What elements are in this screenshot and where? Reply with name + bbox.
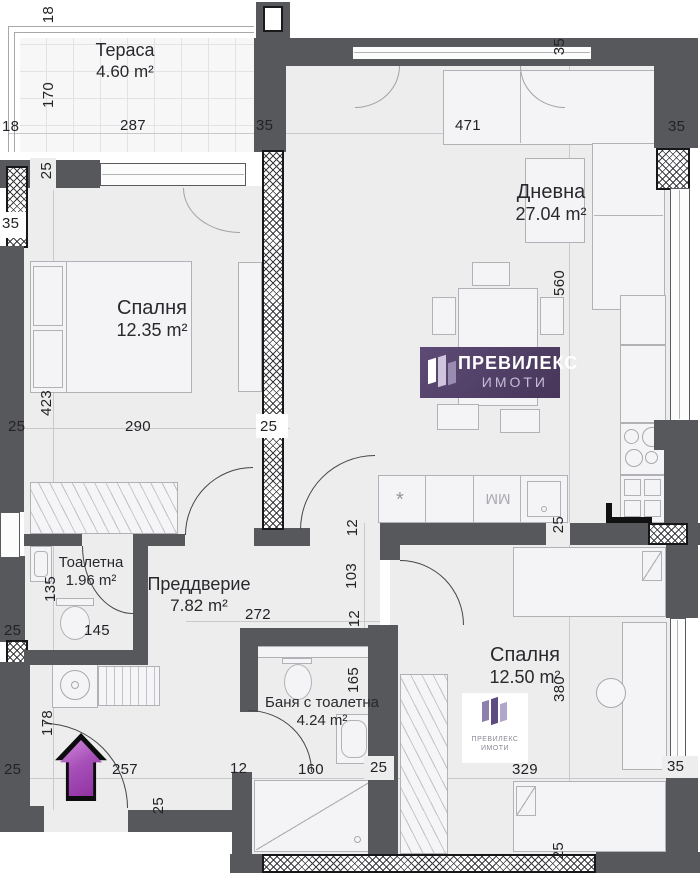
wall-terrace-right <box>254 38 286 152</box>
dim-471: 471 <box>455 117 481 134</box>
dim-35-left-column: 35 <box>2 215 19 232</box>
dim-25-toilet: 25 <box>4 622 21 639</box>
kitchen-counter-divider-2 <box>473 476 474 522</box>
bedroom2-stool <box>596 678 626 708</box>
hall-area: 7.82 m² <box>119 596 279 617</box>
logo-text-line1: ПРЕВИЛЕКС <box>458 353 578 374</box>
sofa-cushion-line-1 <box>520 72 521 143</box>
dim-165: 165 <box>345 667 362 693</box>
kitchen-sink-faucet <box>541 506 547 512</box>
window-living-right-line <box>679 190 680 419</box>
dim-25-bath-right: 25 <box>370 759 387 776</box>
dim-257: 257 <box>112 761 138 778</box>
logo-text-line2: ИМОТИ <box>482 374 548 390</box>
window-bedroom2-right <box>670 618 686 768</box>
wall-right-mid <box>654 420 698 450</box>
watermark-text-line2: ИМОТИ <box>462 744 528 753</box>
wall-bottom-bath-corner <box>230 854 262 873</box>
dim-35-top-right: 35 <box>551 38 568 55</box>
bedroom2-area: 12.50 m² <box>450 667 600 689</box>
wall-right-kitchen <box>664 450 698 525</box>
dining-chair-bottom-left <box>437 404 479 430</box>
wall-toilet-top-a <box>24 534 82 546</box>
label-bath: Баня с тоалетна 4.24 m² <box>258 694 386 731</box>
stove-burner-4 <box>645 451 658 464</box>
bedroom2-name: Спалня <box>450 643 600 667</box>
dim-25-left-top: 25 <box>38 162 55 179</box>
logo-building-icon-2 <box>438 355 446 388</box>
bedroom2-bed2-pillow <box>516 786 536 816</box>
entrance-threshold <box>44 806 128 832</box>
bedroom1-pillow-2 <box>33 330 63 388</box>
dining-chair-bottom-right <box>500 409 540 433</box>
window-bedroom1-line <box>102 174 244 175</box>
dim-25-kitchen: 25 <box>550 516 567 533</box>
column-right-top <box>656 148 690 190</box>
label-hall: Преддверие 7.82 m² <box>119 574 279 617</box>
dim-560: 560 <box>551 270 568 296</box>
bath-name: Баня с тоалетна <box>258 694 386 712</box>
dim-35-terrace: 35 <box>256 117 273 134</box>
dining-chair-right <box>540 297 564 335</box>
logo-building-icon-3 <box>448 361 456 386</box>
washing-machine-mark: ММ <box>478 490 518 507</box>
dim-287: 287 <box>120 117 146 134</box>
toilet-area: 1.96 m² <box>48 572 134 590</box>
dim-35-right-corner: 35 <box>668 118 685 135</box>
stove-burner-1 <box>624 429 639 444</box>
wall-left-bedroom1 <box>0 246 24 512</box>
wall-bottom-left-a <box>0 806 44 832</box>
column-center <box>262 150 284 530</box>
window-bedroom2-line <box>677 620 678 766</box>
kitchen-cabinet-door-4 <box>644 500 661 517</box>
dim-103: 103 <box>343 563 360 589</box>
bedroom2-wardrobe <box>400 674 448 854</box>
bath-area: 4.24 m² <box>258 712 386 730</box>
bedroom1-bed-line <box>66 262 67 392</box>
wall-bath-left <box>240 628 258 712</box>
label-bedroom2: Спалня 12.50 m² <box>450 643 600 689</box>
label-toilet: Тоалетна 1.96 m² <box>48 554 134 591</box>
dim-178: 178 <box>39 710 56 736</box>
watermark-text-line1: ПРЕВИЛЕКС <box>462 735 528 744</box>
label-terrace: Тераса 4.60 m² <box>58 40 192 83</box>
dim-145: 145 <box>84 622 110 639</box>
shower-drain <box>354 836 361 843</box>
wall-chimney-notch <box>263 6 283 32</box>
wall-hall-cap <box>254 528 310 546</box>
dim-290: 290 <box>125 418 151 435</box>
dim-423: 423 <box>38 390 55 416</box>
dim-170: 170 <box>40 82 57 108</box>
window-living-right <box>670 188 690 421</box>
label-bedroom1: Спалня 12.35 m² <box>80 296 224 342</box>
wall-bath-left-lower <box>232 772 252 856</box>
bedroom1-pillow-1 <box>33 266 63 326</box>
wall-toilet-top-b <box>133 534 185 546</box>
dim-329: 329 <box>512 761 538 778</box>
bedroom2-bed1-pillow <box>642 551 662 581</box>
fridge <box>620 295 666 345</box>
hall-shelf <box>98 666 160 706</box>
kitchen-cabinet-door-3 <box>624 500 641 517</box>
watermark-icon-bar-2 <box>491 697 498 725</box>
kitchen-counter-divider-3 <box>520 476 521 522</box>
brand-logo: ПРЕВИЛЕКС ИМОТИ <box>420 347 560 398</box>
wall-bedroom2-right-top <box>666 545 698 618</box>
window-left-small <box>0 512 20 558</box>
bedroom1-dresser <box>238 262 262 392</box>
sofa-right <box>592 143 665 310</box>
column-kitchen <box>648 523 688 545</box>
wall-bath-right <box>368 625 398 856</box>
terrace-name: Тераса <box>58 40 192 62</box>
dim-12-bath: 12 <box>230 760 247 777</box>
hall-name: Преддверие <box>119 574 279 596</box>
watermark-icon-bar-1 <box>482 700 489 722</box>
dim-25-bedroom1-right: 25 <box>260 418 277 435</box>
stove-burner-3 <box>625 449 643 467</box>
kitchen-cabinet-door-1 <box>624 479 641 496</box>
bedroom1-closet <box>30 482 178 534</box>
watermark-icon-bar-3 <box>500 702 507 722</box>
living-area: 27.04 m² <box>478 204 624 226</box>
terrace-area: 4.60 m² <box>58 62 192 83</box>
dining-chair-top <box>472 262 510 286</box>
floor-plan: * ММ <box>0 0 700 873</box>
dim-18-left: 18 <box>2 118 19 135</box>
kitchen-counter-right <box>620 345 666 423</box>
dim-12-b: 12 <box>346 610 363 627</box>
dim-12-a: 12 <box>344 519 361 536</box>
shower-tray-diagonal <box>256 782 370 850</box>
dim-35-bedroom2: 35 <box>667 758 684 775</box>
toilet-sink-bowl <box>34 551 48 577</box>
logo-building-icon <box>428 358 436 385</box>
washing-machine-hub <box>71 681 79 689</box>
wall-toilet-bottom <box>24 650 148 665</box>
label-living: Дневна 27.04 m² <box>478 180 624 226</box>
dim-18-top: 18 <box>40 6 57 23</box>
living-name: Дневна <box>478 180 624 204</box>
wall-bedroom2-right-bottom <box>666 768 698 856</box>
bedroom2-desk <box>622 622 667 770</box>
dim-160: 160 <box>298 761 324 778</box>
dim-25-hall-bottom: 25 <box>150 797 167 814</box>
toilet-wc-tank <box>56 598 94 606</box>
wall-bedroom2-left-top <box>380 545 400 560</box>
dim-25-bedroom1-left: 25 <box>8 418 25 435</box>
bedroom1-name: Спалня <box>80 296 224 320</box>
dim-25-entrance: 25 <box>4 761 21 778</box>
bedroom1-area: 12.35 m² <box>80 320 224 342</box>
toilet-name: Тоалетна <box>48 554 134 572</box>
wall-bottom-hatch <box>262 854 596 873</box>
dim-25-bottom-right: 25 <box>550 842 567 859</box>
wall-bottom-right <box>596 852 700 873</box>
kitchen-cabinet-door-2 <box>644 479 661 496</box>
dishwasher-mark: * <box>396 489 404 512</box>
watermark-logo: ПРЕВИЛЕКС ИМОТИ <box>462 693 528 763</box>
dining-chair-left <box>432 297 456 335</box>
wall-left-entrance <box>0 662 30 810</box>
kitchen-counter-divider-1 <box>425 476 426 522</box>
bath-shelf <box>250 646 386 658</box>
